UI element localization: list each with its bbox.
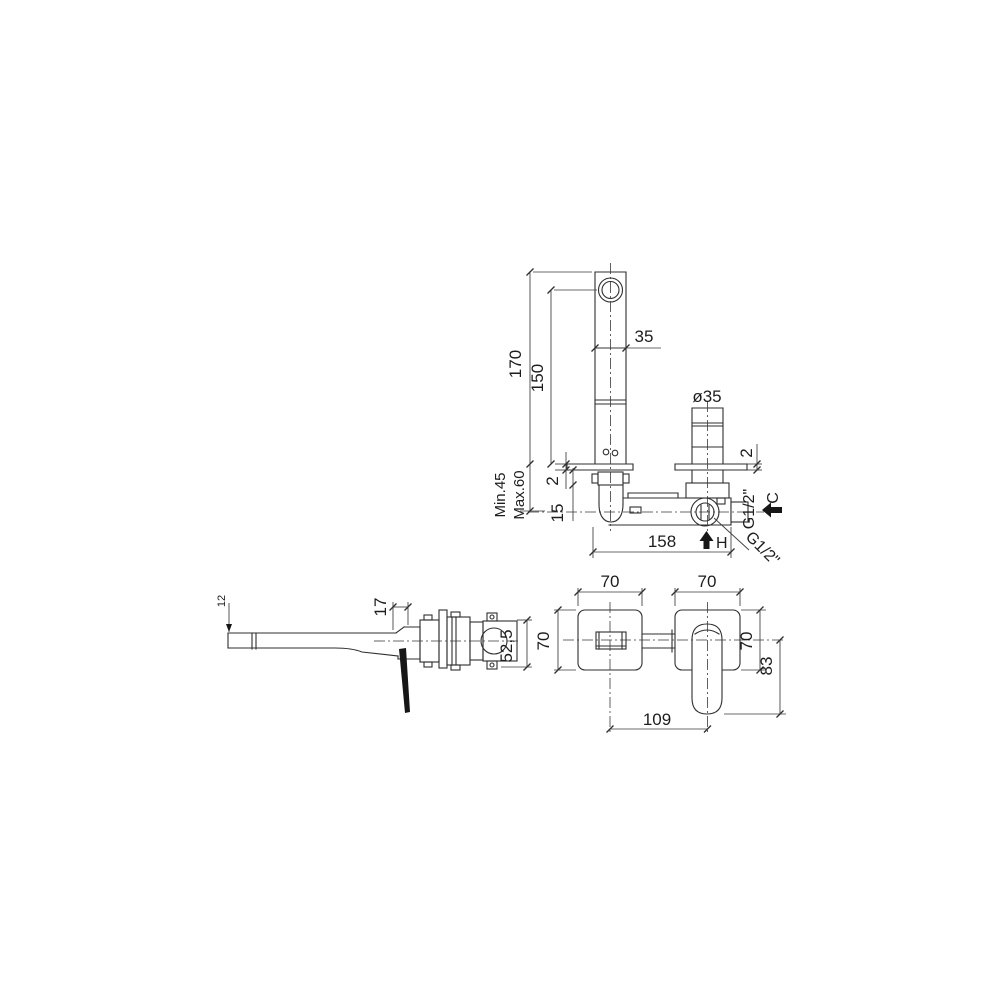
handle-front [692, 624, 722, 714]
dim-109-label: 109 [643, 710, 671, 729]
dim-70-right-label: 70 [737, 632, 756, 651]
technical-drawing: 170 150 Min.45 Max.60 35 ø35 2 15 2 158 … [0, 0, 1000, 1000]
dim-max60-label: Max.60 [511, 470, 528, 519]
hot-label: H [716, 535, 728, 552]
dim-dia35-label: ø35 [692, 387, 721, 406]
dim-17-label: 17 [371, 598, 390, 617]
drawing-canvas: 170 150 Min.45 Max.60 35 ø35 2 15 2 158 … [0, 0, 1000, 1000]
dim-52-5-label: 52,5 [497, 629, 516, 662]
dim-150-label: 150 [528, 364, 547, 392]
dim-2-left-label: 2 [543, 476, 562, 485]
dim-70-top-left-label: 70 [601, 572, 620, 591]
dim-12-label: 12 [216, 595, 228, 607]
dim-158-label: 158 [648, 532, 676, 551]
thread-side-label: G1/2" [741, 489, 758, 529]
dim-2-right-label: 2 [737, 448, 756, 457]
cold-label: C [765, 492, 782, 504]
dim-70-left-label: 70 [534, 632, 553, 651]
dim-70-top-right-label: 70 [698, 572, 717, 591]
dim-35-label: 35 [635, 327, 654, 346]
dim-170-label: 170 [506, 350, 525, 378]
dim-15-label: 15 [548, 504, 567, 523]
dim-83-label: 83 [757, 657, 776, 676]
dim-min45-label: Min.45 [492, 472, 509, 517]
